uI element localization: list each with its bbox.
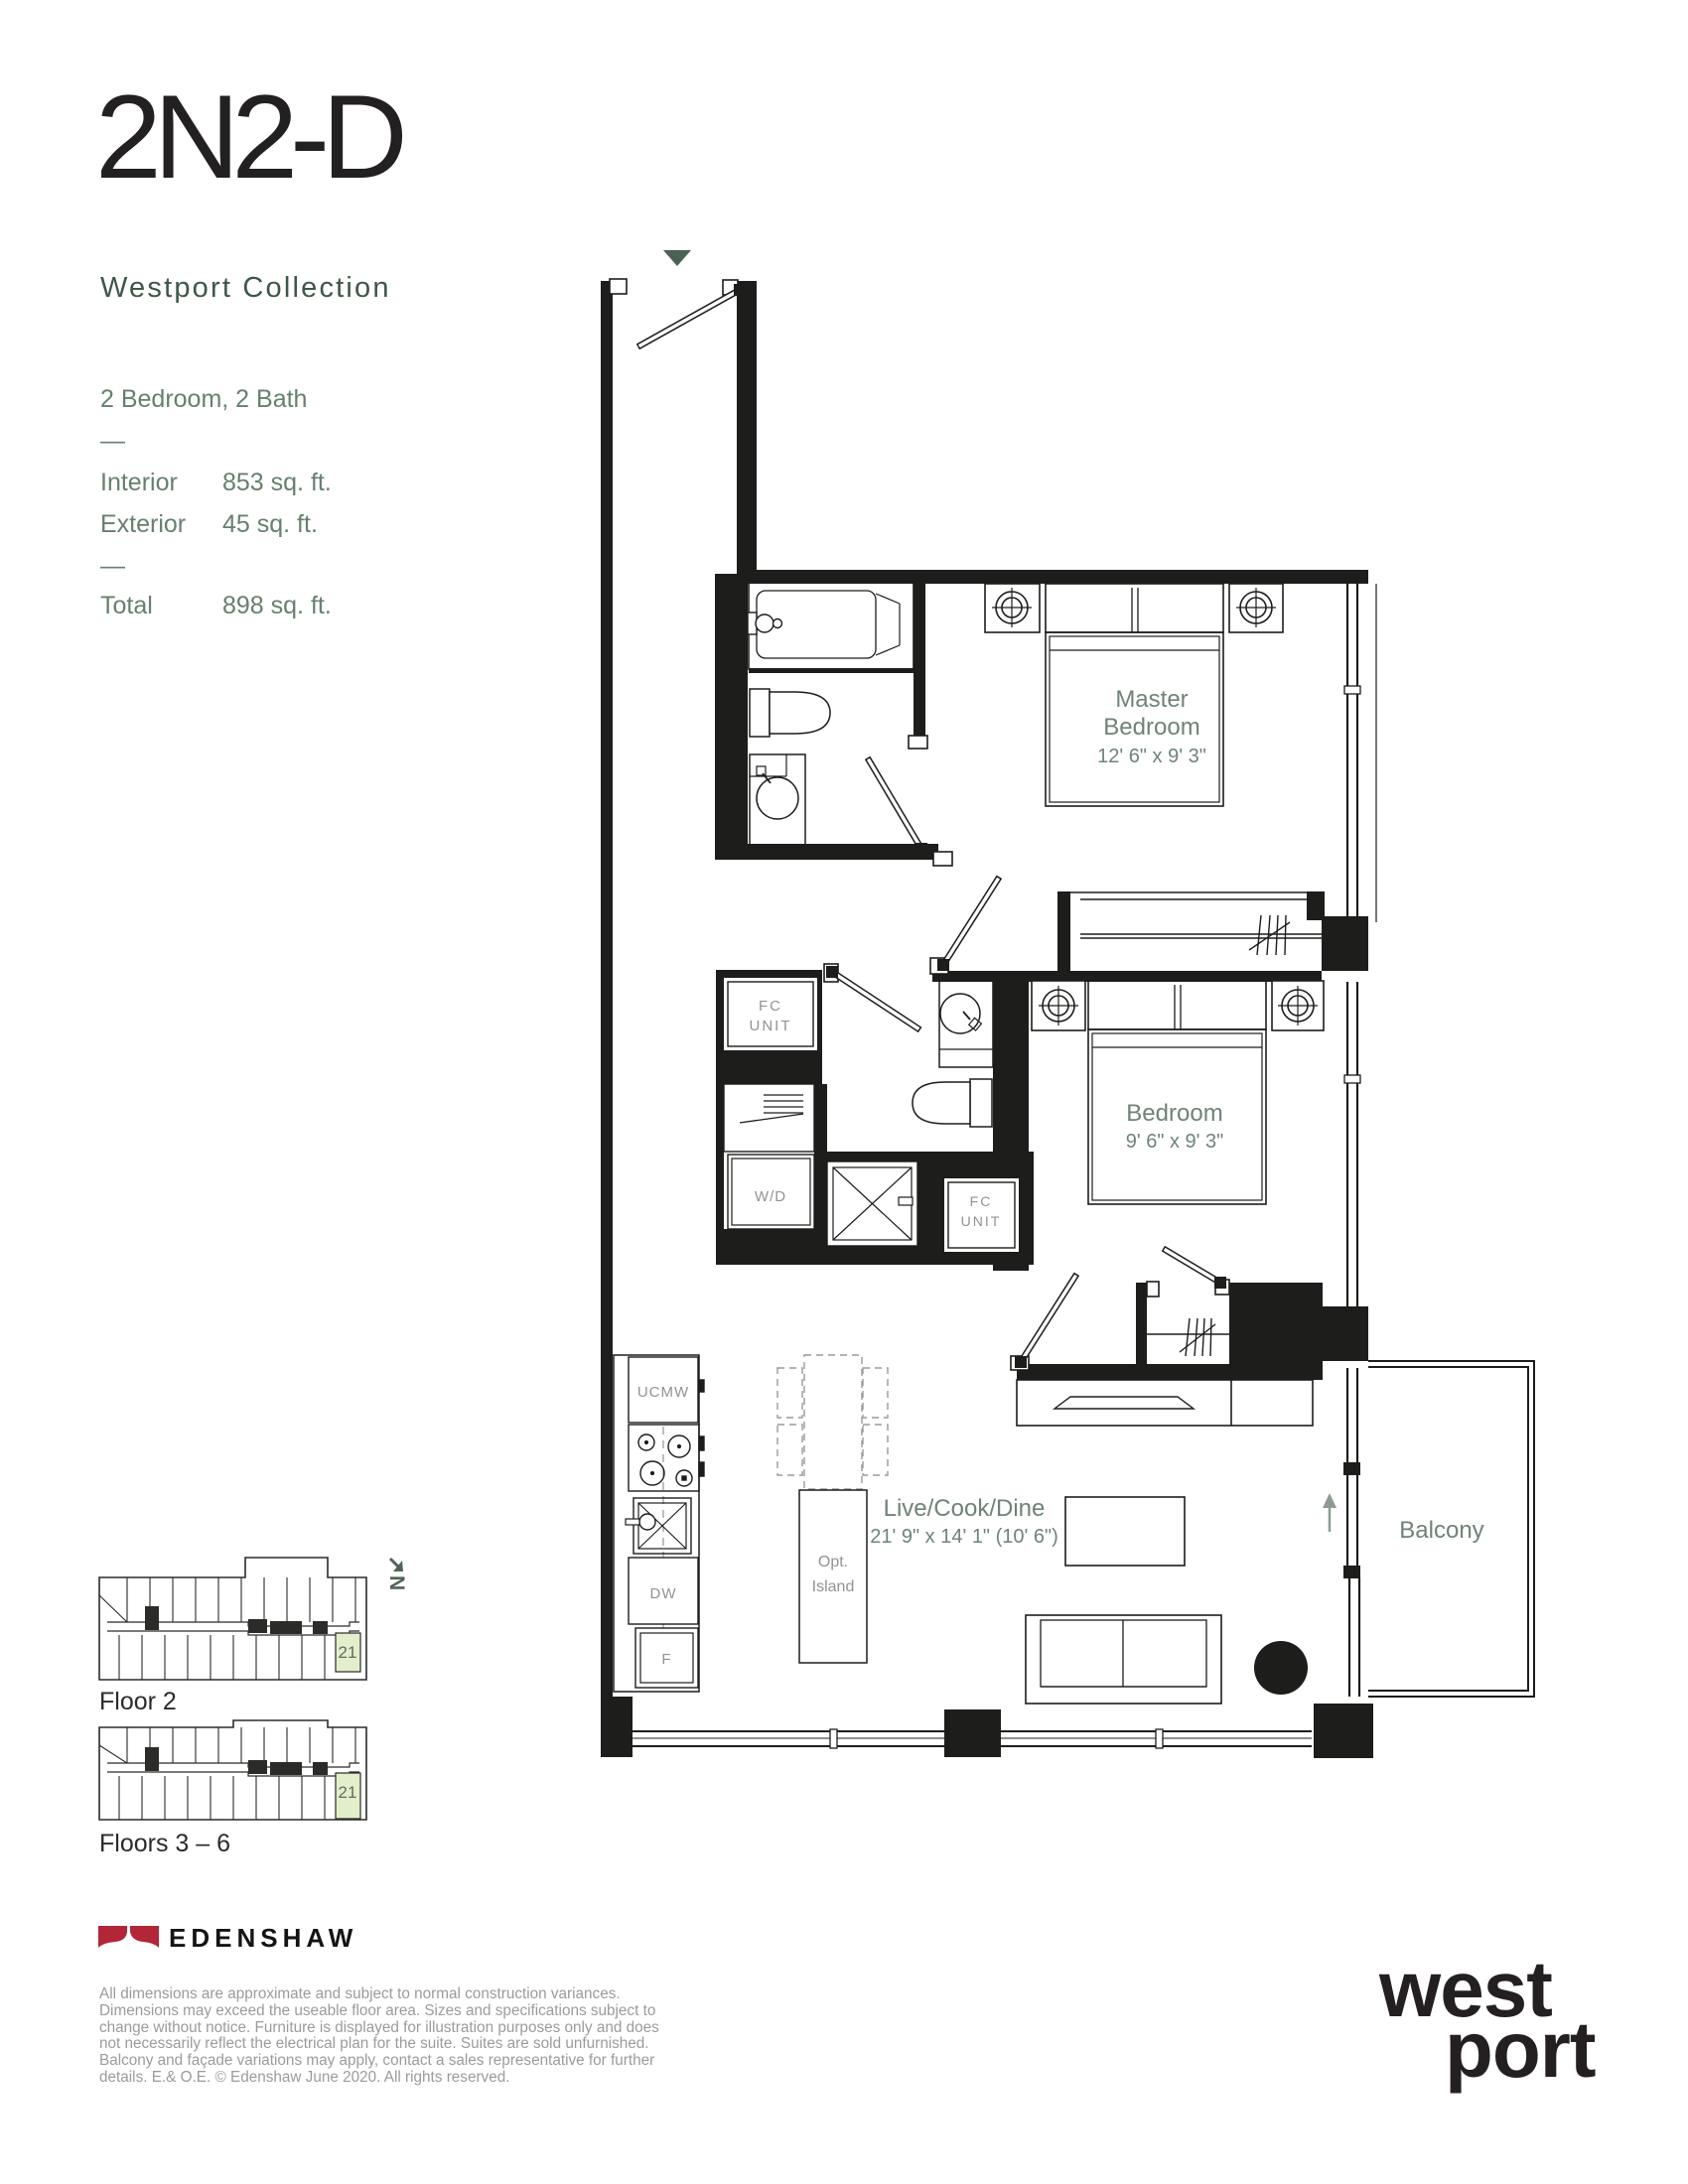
svg-text:W/D: W/D: [755, 1188, 786, 1205]
svg-text:21: 21: [339, 1783, 357, 1802]
svg-text:FC: FC: [970, 1193, 993, 1209]
svg-text:Island: Island: [812, 1578, 855, 1595]
svg-text:Opt.: Opt.: [818, 1554, 848, 1570]
svg-text:DW: DW: [650, 1585, 677, 1602]
svg-text:21: 21: [339, 1643, 357, 1662]
svg-text:F: F: [661, 1651, 670, 1668]
svg-text:Bedroom: Bedroom: [1103, 714, 1199, 741]
svg-text:Live/Cook/Dine: Live/Cook/Dine: [884, 1495, 1046, 1522]
svg-text:12' 6" x 9' 3": 12' 6" x 9' 3": [1097, 746, 1206, 767]
svg-text:EDENSHAW: EDENSHAW: [169, 1923, 357, 1953]
svg-text:Bedroom: Bedroom: [1126, 1100, 1222, 1127]
svg-text:21' 9" x 14' 1" (10' 6"): 21' 9" x 14' 1" (10' 6"): [870, 1526, 1058, 1548]
svg-text:9' 6" x 9' 3": 9' 6" x 9' 3": [1126, 1131, 1224, 1153]
svg-text:UNIT: UNIT: [750, 1018, 792, 1034]
svg-text:N: N: [385, 1575, 408, 1590]
svg-text:FC: FC: [759, 998, 782, 1015]
svg-text:Master: Master: [1115, 686, 1188, 713]
svg-text:UCMW: UCMW: [637, 1384, 689, 1401]
svg-text:Balcony: Balcony: [1399, 1517, 1483, 1544]
svg-text:UNIT: UNIT: [961, 1213, 1002, 1229]
